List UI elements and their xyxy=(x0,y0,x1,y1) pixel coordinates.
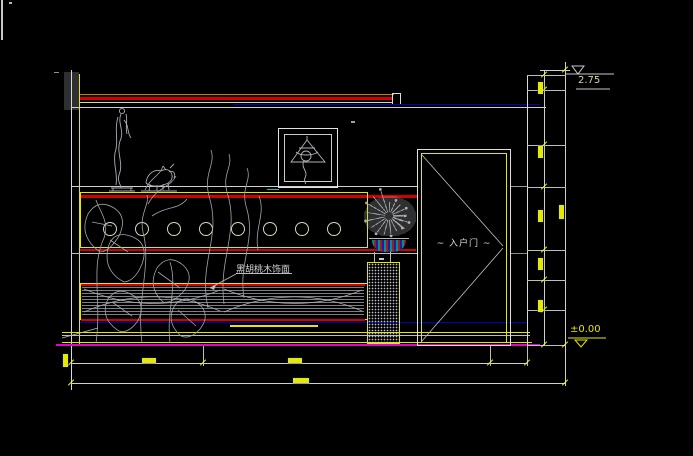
dim-ext-line xyxy=(527,145,566,146)
statue-art xyxy=(109,108,135,191)
dim-number-blur xyxy=(538,300,543,312)
plant-art xyxy=(85,150,261,343)
dim-ext-line xyxy=(527,345,566,346)
dim-ext-line xyxy=(527,310,566,311)
dim-ext-line xyxy=(527,75,566,76)
flower-strokes xyxy=(365,188,410,237)
dim-number-blur xyxy=(538,82,543,94)
dim-ext-line xyxy=(527,187,566,188)
dim-number-blur xyxy=(538,258,543,270)
door-swing-lines xyxy=(422,155,503,341)
dim-ext-line xyxy=(527,250,566,251)
dim-number-blur xyxy=(538,146,543,158)
dim-number-blur xyxy=(288,358,302,363)
cad-canvas: 黑胡桃木饰面 ~ 入户门 ~ 2.75 xyxy=(0,0,693,456)
dim-number-blur xyxy=(142,358,156,363)
dim-number-blur xyxy=(63,354,68,367)
dim-number-blur xyxy=(538,210,543,222)
dim-ext-line xyxy=(527,280,566,281)
picture-frame-art xyxy=(291,136,325,184)
dim-ext-line xyxy=(527,90,566,91)
dim-number-blur xyxy=(559,205,564,219)
ground-diagonal-line xyxy=(62,328,98,338)
dim-number-blur xyxy=(293,378,309,383)
line-art-overlay xyxy=(0,0,693,456)
